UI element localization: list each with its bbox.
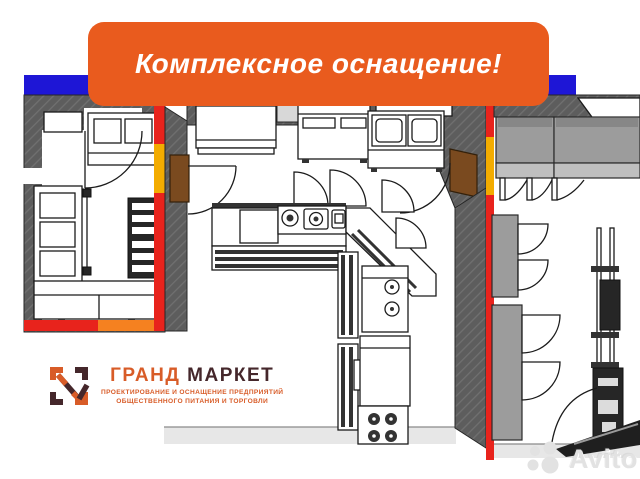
avito-watermark-text: Avito xyxy=(569,444,638,475)
promo-banner-text: Комплексное оснащение! xyxy=(135,48,502,80)
brand-name-second: МАРКЕТ xyxy=(187,365,274,386)
company-logo: ГРАНД МАРКЕТ ПРОЕКТИРОВАНИЕ И ОСНАЩЕНИЕ … xyxy=(46,363,283,409)
brand-tagline-line2: ОБЩЕСТВЕННОГО ПИТАНИЯ И ТОРГОВЛИ xyxy=(116,397,268,407)
grand-market-logo-icon xyxy=(46,363,92,409)
brand-tagline-line1: ПРОЕКТИРОВАНИЕ И ОСНАЩЕНИЕ ПРЕДПРИЯТИЙ xyxy=(101,388,283,398)
right-room xyxy=(492,95,640,458)
ad-image: Комплексное оснащение! ГРАНД МАРКЕТ ПРОЕ… xyxy=(0,0,640,479)
avito-logo-icon xyxy=(526,441,564,477)
brand-name: ГРАНД МАРКЕТ xyxy=(110,365,274,388)
brand-name-first: ГРАНД xyxy=(110,365,180,386)
promo-banner: Комплексное оснащение! xyxy=(88,22,549,106)
company-logo-text: ГРАНД МАРКЕТ ПРОЕКТИРОВАНИЕ И ОСНАЩЕНИЕ … xyxy=(101,365,283,407)
left-room xyxy=(20,95,187,332)
avito-watermark: Avito xyxy=(526,439,640,479)
